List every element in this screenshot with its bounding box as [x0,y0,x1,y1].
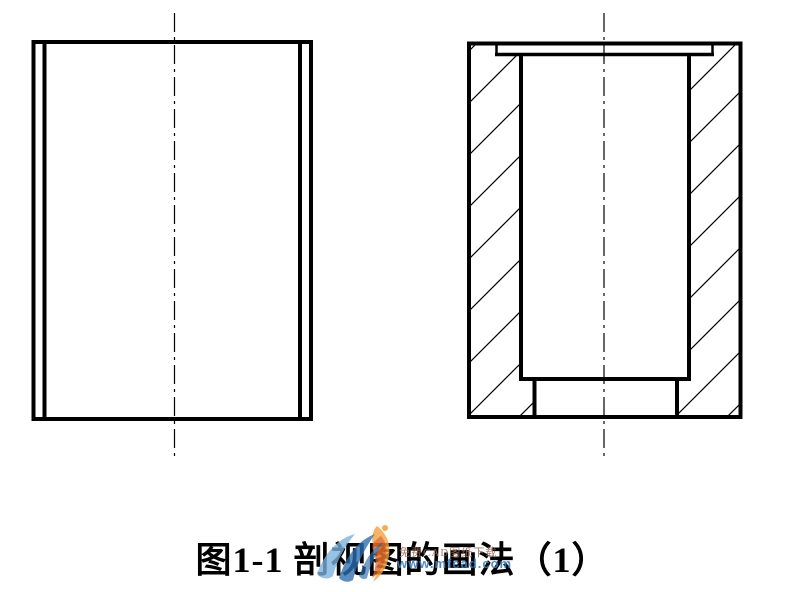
watermark-url: www.mfcad.com [397,556,512,571]
engineering-drawing-page: 图1-1 剖视图的画法（1） 免费CAD图纸下载 www.mfcad.com [0,0,792,592]
front-view [34,13,312,460]
section-view [469,13,741,460]
front-view-outline [34,42,312,419]
watermark: 免费CAD图纸下载 www.mfcad.com [315,522,510,588]
section-hatch-left-wall [471,46,533,416]
flame-spark [382,525,388,531]
drawing-canvas [0,0,792,592]
